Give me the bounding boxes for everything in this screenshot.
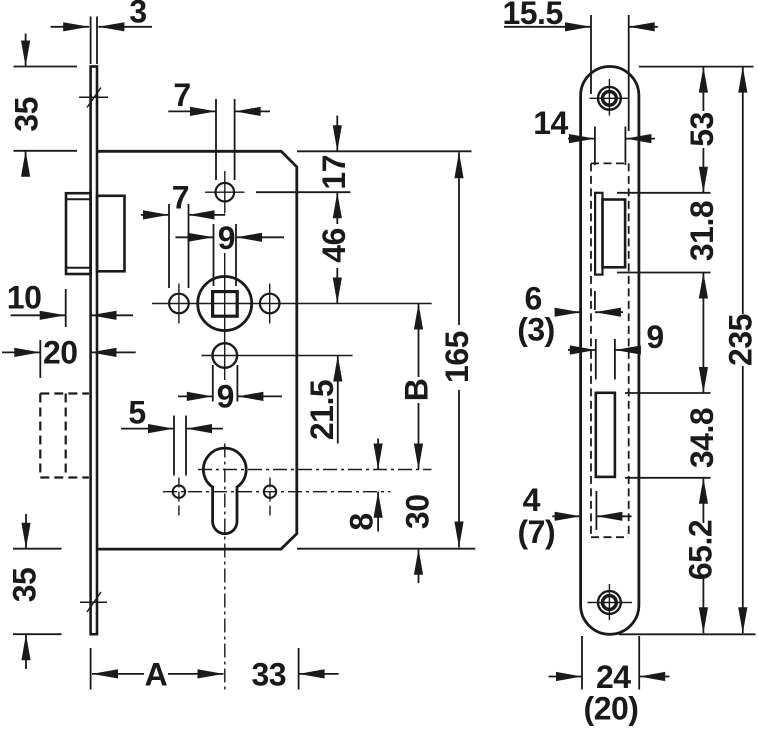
svg-text:9: 9 [218,220,235,256]
svg-text:165: 165 [439,331,475,383]
svg-text:20: 20 [43,335,78,371]
svg-text:21.5: 21.5 [304,380,340,440]
svg-text:B: B [398,379,434,402]
svg-text:35: 35 [7,568,43,603]
svg-text:7: 7 [172,180,189,216]
svg-text:33: 33 [252,656,287,692]
svg-text:9: 9 [217,379,234,415]
svg-text:30: 30 [400,495,436,530]
svg-text:35: 35 [9,97,45,132]
svg-text:10: 10 [7,280,42,316]
svg-text:14: 14 [533,105,568,141]
svg-text:7: 7 [173,77,190,113]
svg-text:(7): (7) [517,514,555,550]
svg-text:65.2: 65.2 [683,520,719,580]
svg-text:17: 17 [316,155,352,190]
svg-text:46: 46 [316,228,352,263]
svg-text:3: 3 [129,0,146,30]
svg-text:53: 53 [684,112,720,147]
svg-text:235: 235 [723,314,758,366]
svg-text:8: 8 [344,513,380,530]
svg-text:34.8: 34.8 [684,408,720,468]
svg-text:(20): (20) [584,691,639,727]
svg-text:5: 5 [128,395,145,431]
svg-text:4: 4 [523,482,541,518]
svg-text:(3): (3) [517,312,555,348]
svg-text:A: A [145,656,168,692]
svg-text:9: 9 [646,319,663,355]
svg-text:15.5: 15.5 [502,0,562,31]
svg-text:31.8: 31.8 [684,201,720,261]
